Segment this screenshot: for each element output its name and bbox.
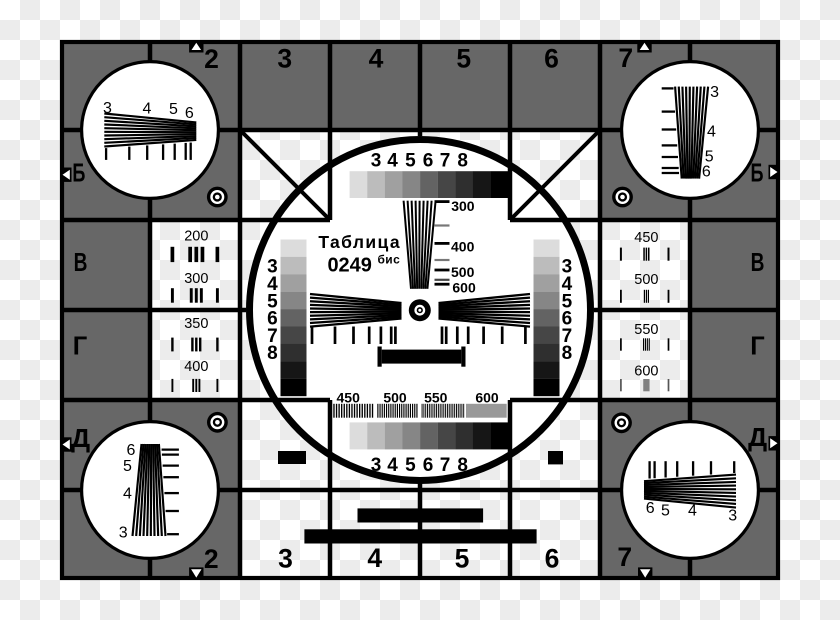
svg-text:бис: бис	[378, 253, 401, 267]
svg-text:400: 400	[184, 359, 208, 375]
svg-text:3: 3	[710, 84, 719, 101]
svg-text:200: 200	[184, 228, 208, 244]
svg-text:0249: 0249	[327, 254, 372, 276]
svg-text:8: 8	[457, 150, 468, 171]
svg-text:3: 3	[278, 543, 293, 573]
svg-text:4: 4	[123, 486, 132, 503]
svg-text:6: 6	[702, 163, 711, 180]
svg-text:6: 6	[544, 43, 559, 73]
svg-text:7: 7	[618, 43, 633, 73]
svg-text:4: 4	[369, 43, 384, 73]
svg-text:Г: Г	[750, 333, 764, 361]
svg-text:5: 5	[661, 503, 670, 520]
svg-text:4: 4	[688, 503, 697, 520]
svg-text:400: 400	[451, 238, 475, 254]
svg-text:2: 2	[204, 44, 219, 74]
svg-text:3: 3	[119, 525, 128, 542]
svg-text:600: 600	[452, 279, 476, 295]
svg-text:8: 8	[457, 455, 468, 476]
svg-text:500: 500	[383, 389, 407, 405]
svg-text:Д: Д	[748, 424, 767, 452]
svg-text:5: 5	[405, 455, 416, 476]
svg-text:5: 5	[456, 43, 471, 73]
svg-text:600: 600	[634, 363, 658, 379]
svg-text:3: 3	[371, 455, 382, 476]
svg-text:4: 4	[367, 543, 382, 573]
svg-text:8: 8	[267, 343, 278, 364]
svg-text:8: 8	[562, 343, 573, 364]
svg-text:5: 5	[455, 543, 470, 573]
svg-text:2: 2	[204, 544, 219, 574]
svg-text:550: 550	[634, 322, 658, 338]
svg-text:Г: Г	[73, 333, 87, 361]
svg-text:7: 7	[440, 455, 451, 476]
svg-text:500: 500	[634, 272, 658, 288]
svg-text:5: 5	[405, 150, 416, 171]
svg-text:В: В	[751, 249, 765, 277]
svg-text:550: 550	[424, 389, 448, 405]
svg-text:4: 4	[143, 101, 152, 118]
svg-text:3: 3	[728, 508, 737, 525]
svg-text:6: 6	[423, 150, 434, 171]
svg-text:4: 4	[707, 124, 716, 141]
svg-text:450: 450	[337, 389, 361, 405]
svg-text:7: 7	[440, 150, 451, 171]
svg-text:В: В	[74, 249, 88, 277]
svg-text:6: 6	[127, 442, 136, 459]
svg-text:300: 300	[184, 271, 208, 287]
svg-text:6: 6	[646, 500, 655, 517]
svg-text:5: 5	[169, 101, 178, 118]
svg-text:3: 3	[277, 43, 292, 73]
svg-text:300: 300	[451, 198, 475, 214]
svg-text:450: 450	[634, 230, 658, 246]
svg-text:6: 6	[545, 543, 560, 573]
svg-text:3: 3	[371, 150, 382, 171]
svg-text:600: 600	[475, 389, 499, 405]
svg-text:500: 500	[451, 264, 475, 280]
svg-text:6: 6	[423, 455, 434, 476]
svg-text:Б: Б	[751, 159, 764, 187]
svg-text:3: 3	[103, 100, 112, 117]
svg-text:6: 6	[185, 105, 194, 122]
svg-text:350: 350	[184, 316, 208, 332]
svg-text:Таблица: Таблица	[318, 232, 401, 252]
svg-text:4: 4	[387, 455, 398, 476]
svg-text:5: 5	[123, 458, 132, 475]
svg-text:4: 4	[387, 150, 398, 171]
svg-text:7: 7	[617, 542, 632, 572]
svg-text:Б: Б	[72, 159, 85, 187]
svg-text:Д: Д	[71, 425, 90, 453]
